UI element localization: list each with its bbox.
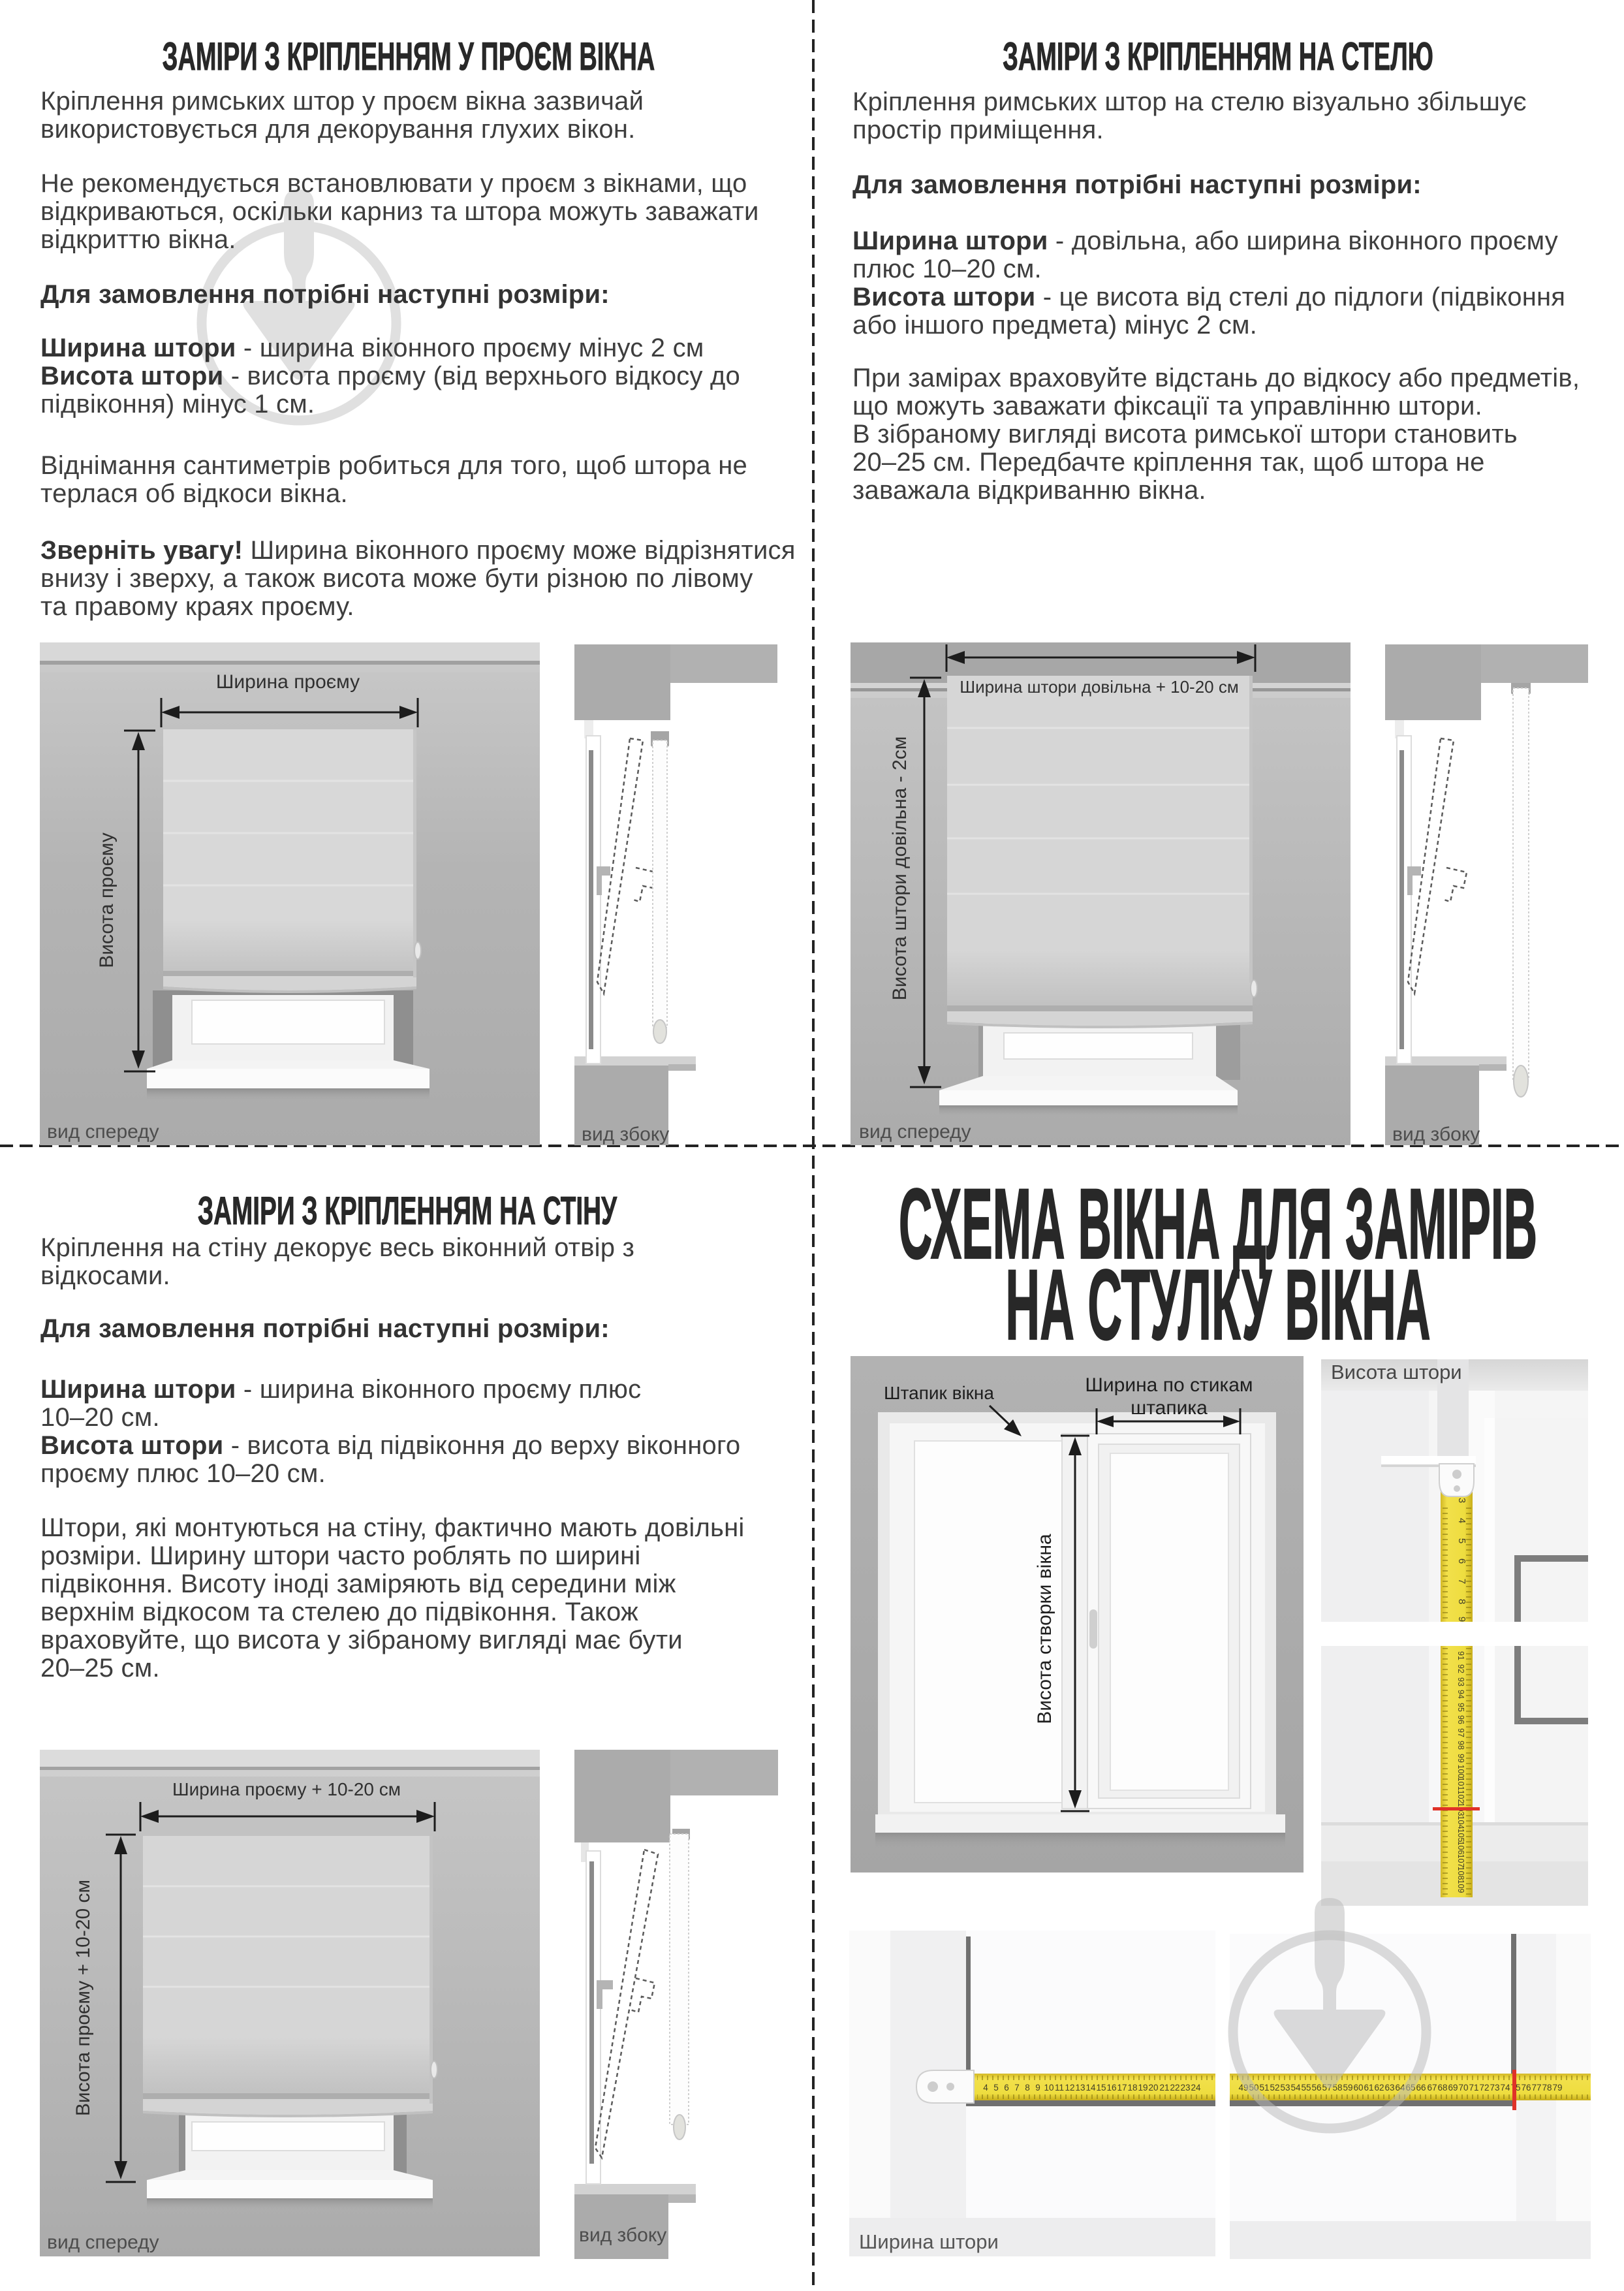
svg-text:99: 99 [1456, 1754, 1465, 1763]
svg-text:вид збоку: вид збоку [582, 1124, 669, 1145]
svg-text:Ширина проєму + 10-20 см: Ширина проєму + 10-20 см [172, 1779, 401, 1799]
svg-text:15: 15 [1096, 2083, 1106, 2093]
svg-text:9: 9 [1456, 1617, 1467, 1622]
svg-text:93: 93 [1456, 1677, 1465, 1686]
svg-text:96: 96 [1456, 1715, 1465, 1724]
svg-text:вид збоку: вид збоку [1392, 1124, 1480, 1145]
svg-text:101: 101 [1456, 1777, 1465, 1791]
svg-text:штапика: штапика [1131, 1397, 1208, 1419]
svg-text:4: 4 [983, 2083, 988, 2093]
svg-text:71: 71 [1469, 2083, 1478, 2093]
svg-text:12: 12 [1065, 2083, 1074, 2093]
svg-text:19: 19 [1138, 2083, 1148, 2093]
svg-text:20: 20 [1148, 2083, 1158, 2093]
svg-text:вид спереду: вид спереду [47, 1121, 159, 1143]
svg-text:17: 17 [1117, 2083, 1127, 2093]
svg-text:95: 95 [1456, 1703, 1465, 1712]
svg-text:97: 97 [1456, 1728, 1465, 1737]
svg-text:Ширина штори довільна + 10-20: Ширина штори довільна + 10-20 см [960, 677, 1239, 697]
svg-text:9: 9 [1035, 2083, 1040, 2093]
svg-text:73: 73 [1490, 2083, 1499, 2093]
svg-text:вид спереду: вид спереду [47, 2232, 159, 2253]
svg-text:91: 91 [1456, 1651, 1465, 1660]
svg-text:107: 107 [1456, 1854, 1465, 1868]
svg-text:92: 92 [1456, 1664, 1465, 1673]
svg-text:77: 77 [1531, 2083, 1541, 2093]
svg-text:4: 4 [1456, 1518, 1467, 1523]
svg-text:Ширина по стикам: Ширина по стикам [1085, 1374, 1253, 1396]
svg-text:18: 18 [1127, 2083, 1137, 2093]
svg-text:Висота проєму + 10-20 см: Висота проєму + 10-20 см [72, 1880, 94, 2116]
svg-text:106: 106 [1456, 1841, 1465, 1855]
svg-text:78: 78 [1542, 2083, 1552, 2093]
svg-text:76: 76 [1521, 2083, 1531, 2093]
svg-text:Висота проєму: Висота проєму [96, 832, 117, 968]
svg-text:11: 11 [1055, 2083, 1064, 2093]
svg-text:108: 108 [1456, 1867, 1465, 1880]
svg-text:104: 104 [1456, 1816, 1465, 1829]
svg-text:вид збоку: вид збоку [579, 2224, 666, 2246]
svg-text:72: 72 [1479, 2083, 1489, 2093]
svg-text:5: 5 [993, 2083, 999, 2093]
svg-text:69: 69 [1448, 2083, 1458, 2093]
svg-text:102: 102 [1456, 1790, 1465, 1804]
svg-text:Ширина проєму: Ширина проєму [216, 671, 360, 693]
svg-text:Штапик вікна: Штапик вікна [884, 1383, 994, 1403]
svg-text:21: 21 [1159, 2083, 1169, 2093]
svg-text:79: 79 [1552, 2083, 1562, 2093]
svg-text:10: 10 [1044, 2083, 1054, 2093]
svg-text:вид спереду: вид спереду [859, 1121, 971, 1143]
svg-text:109: 109 [1456, 1880, 1465, 1893]
svg-text:23: 23 [1180, 2083, 1190, 2093]
svg-text:Ширина штори: Ширина штори [859, 2230, 999, 2253]
svg-text:5: 5 [1456, 1538, 1467, 1543]
svg-text:24: 24 [1191, 2083, 1201, 2093]
svg-text:105: 105 [1456, 1829, 1465, 1842]
svg-text:74: 74 [1500, 2083, 1510, 2093]
svg-text:7: 7 [1014, 2083, 1020, 2093]
svg-text:Висота штори: Висота штори [1331, 1361, 1462, 1383]
svg-text:Висота створки вікна: Висота створки вікна [1034, 1534, 1055, 1724]
svg-text:Висота штори довільна - 2см: Висота штори довільна - 2см [889, 736, 911, 1001]
svg-text:16: 16 [1106, 2083, 1116, 2093]
svg-text:94: 94 [1456, 1690, 1465, 1699]
svg-text:70: 70 [1458, 2083, 1468, 2093]
svg-text:98: 98 [1456, 1741, 1465, 1750]
svg-text:6: 6 [1456, 1558, 1467, 1564]
svg-text:3: 3 [1456, 1498, 1467, 1503]
svg-text:8: 8 [1025, 2083, 1030, 2093]
svg-text:6: 6 [1004, 2083, 1009, 2093]
svg-text:13: 13 [1075, 2083, 1085, 2093]
svg-text:8: 8 [1456, 1599, 1467, 1604]
svg-text:14: 14 [1085, 2083, 1096, 2093]
svg-text:7: 7 [1456, 1579, 1467, 1584]
svg-text:22: 22 [1170, 2083, 1179, 2093]
svg-text:100: 100 [1456, 1765, 1465, 1778]
